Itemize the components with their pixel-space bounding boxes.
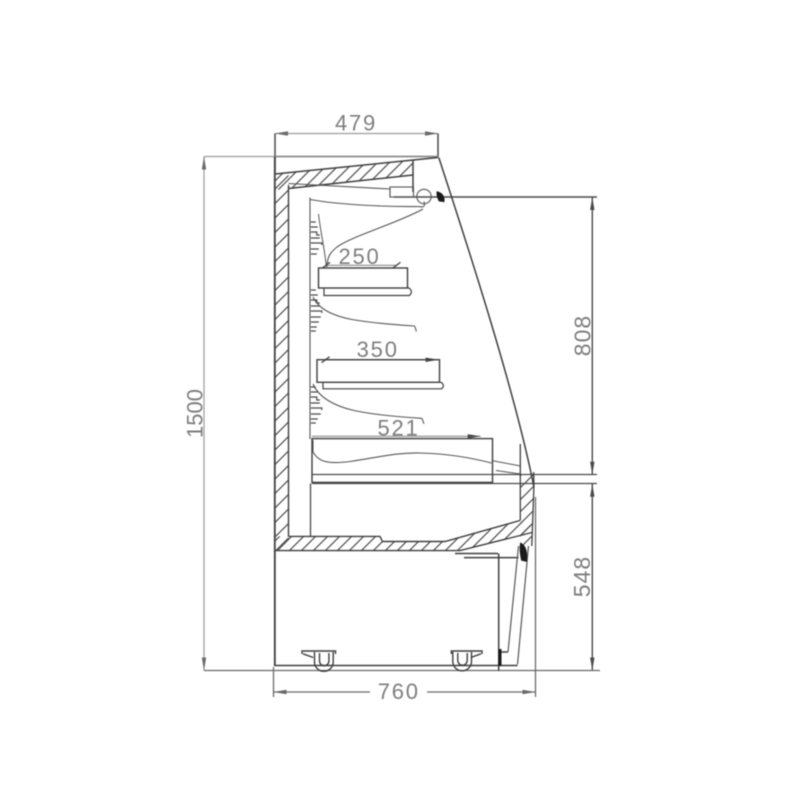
svg-text:350: 350	[357, 337, 399, 362]
svg-text:479: 479	[335, 111, 377, 136]
svg-text:760: 760	[378, 679, 420, 704]
svg-text:250: 250	[338, 244, 380, 269]
svg-text:1500: 1500	[183, 389, 208, 438]
svg-text:521: 521	[377, 416, 419, 441]
svg-text:548: 548	[569, 556, 595, 597]
svg-text:808: 808	[570, 315, 596, 356]
